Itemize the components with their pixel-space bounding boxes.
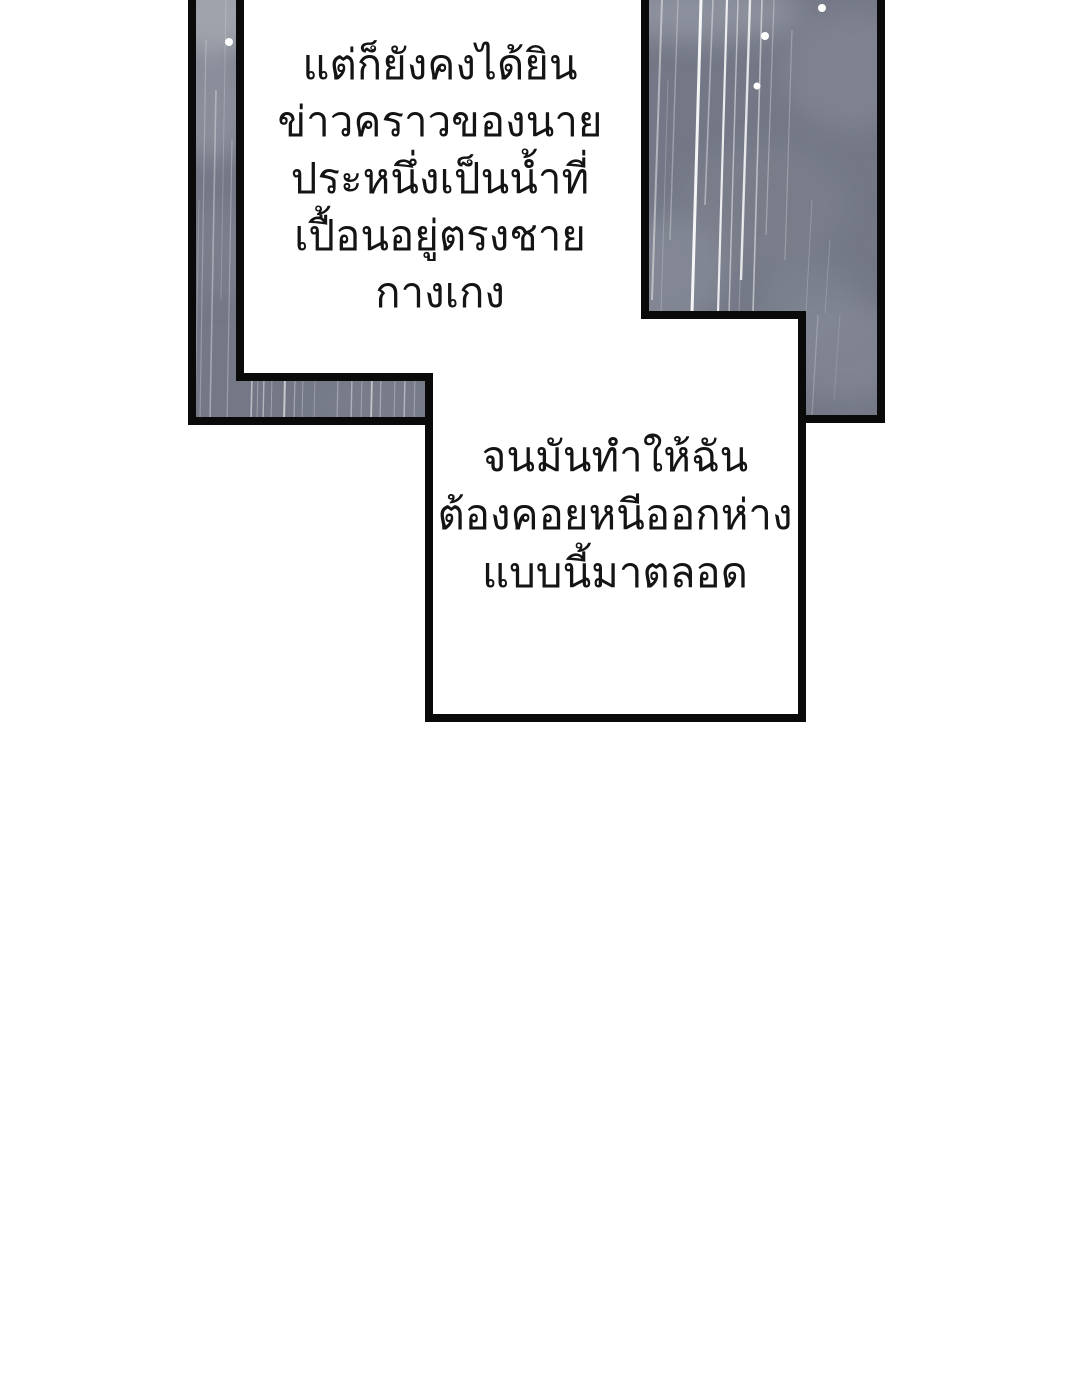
comic-page: แต่ก็ยังคงได้ยิน ข่าวคราวของนาย ประหนึ่ง… (0, 0, 1080, 1395)
narration-line-1: แต่ก็ยังคงได้ยิน (240, 36, 640, 93)
narration-line-3: ประหนึ่งเป็นน้ำที่ (240, 150, 640, 207)
narration-line-2: ต้องคอยหนีออกห่าง (430, 486, 800, 544)
narration-line-3: แบบนี้มาตลอด (430, 544, 800, 602)
narration-line-2: ข่าวคราวของนาย (240, 93, 640, 150)
rain-drop-dot (761, 32, 769, 40)
narration-text-box: จนมันทำให้ฉัน ต้องคอยหนีออกห่าง แบบนี้มา… (430, 428, 800, 602)
rain-drop-dot (818, 4, 826, 12)
narration-text-top: แต่ก็ยังคงได้ยิน ข่าวคราวของนาย ประหนึ่ง… (240, 36, 640, 321)
rain-drop-dot (225, 38, 233, 46)
narration-line-4: เปื้อนอยู่ตรงชายกางเกง (240, 207, 640, 321)
narration-line-1: จนมันทำให้ฉัน (430, 428, 800, 486)
rain-drop-dot (754, 83, 761, 90)
